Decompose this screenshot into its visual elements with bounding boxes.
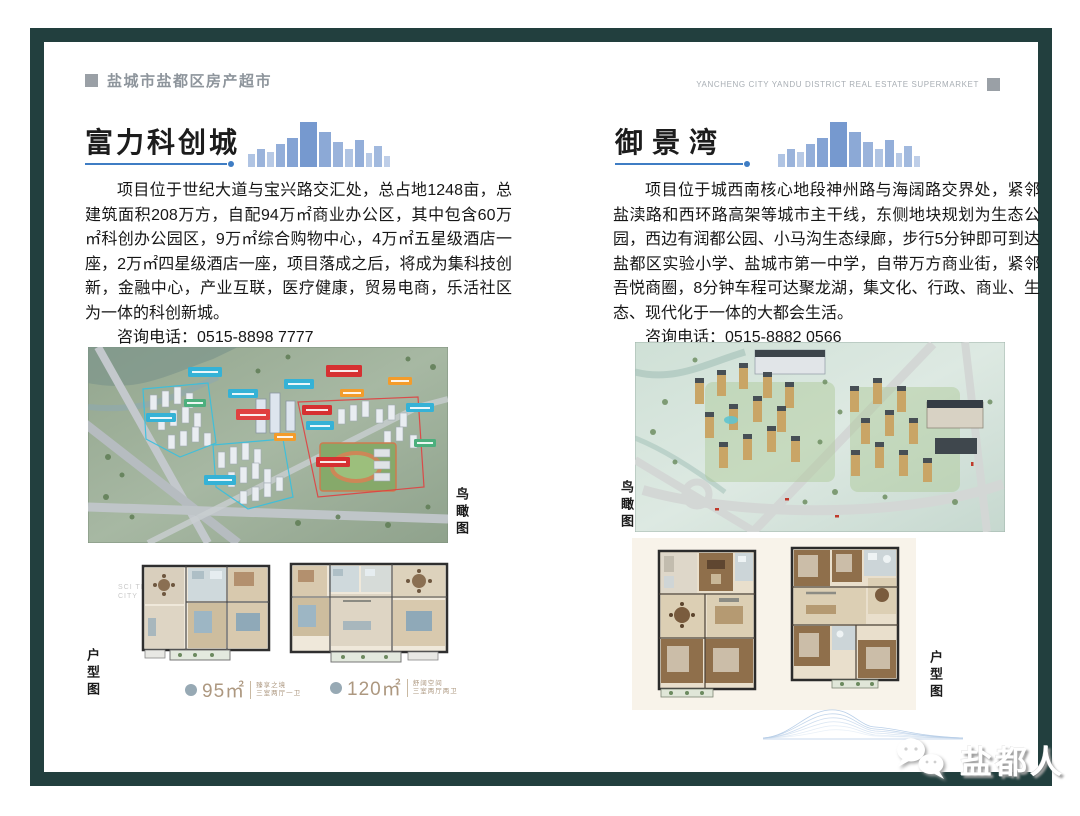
listing1-phone-number: 0515-8898 7777 (197, 329, 314, 346)
listing1-title-underline (85, 163, 227, 165)
tag-95-line1: 臻享之境 (256, 682, 301, 690)
header-title: 盐城市盐都区房产超市 (107, 70, 272, 91)
header-square-left (85, 74, 98, 87)
header-right: YANCHENG CITY YANDU DISTRICT REAL ESTATE… (696, 78, 1000, 91)
wechat-bubbles-icon (893, 736, 951, 784)
listing2-floorplan-label: 户型图 (926, 650, 945, 701)
tag-divider (250, 681, 251, 699)
listing2-description-block: 项目位于城西南核心地段神州路与海阔路交界处，紧邻盐渎路和西环路高架等城市主干线，… (613, 179, 1040, 351)
city-skyline-icon (778, 116, 928, 170)
listing1-floorplan-95 (140, 563, 272, 663)
tag-95-line2: 三室两厅一卫 (256, 690, 301, 698)
tag-circle-icon (185, 684, 197, 696)
header-title-en: YANCHENG CITY YANDU DISTRICT REAL ESTATE… (696, 80, 979, 89)
listing2-description: 项目位于城西南核心地段神州路与海阔路交界处，紧邻盐渎路和西环路高架等城市主干线，… (613, 179, 1040, 326)
listing2-title-underline (615, 163, 743, 165)
listing1-phone-label: 咨询电话： (117, 329, 197, 346)
listing2-title: 御景湾 (615, 121, 726, 161)
listing1-aerial-rendering (88, 347, 448, 543)
tag-circle-icon (330, 682, 342, 694)
tag-area-95: 95㎡ (202, 676, 245, 703)
listing1-description-block: 项目位于世纪大道与宝兴路交汇处，总占地1248亩，总建筑面积208万方，自配94… (85, 179, 512, 351)
listing2-aerial-label: 鸟瞰图 (617, 480, 636, 531)
listing1-description: 项目位于世纪大道与宝兴路交汇处，总占地1248亩，总建筑面积208万方，自配94… (85, 179, 512, 326)
listing2-floorplan-a (655, 548, 761, 700)
city-skyline-icon (248, 116, 398, 170)
floorplan-tag-120: 120㎡ 舒阔空间 三室两厅两卫 (330, 674, 458, 701)
tag-divider (407, 679, 408, 697)
brand-logo: 盐都人 (893, 736, 1065, 784)
tag-area-120: 120㎡ (347, 674, 402, 701)
brochure-page: 盐城市盐都区房产超市 YANCHENG CITY YANDU DISTRICT … (0, 0, 1080, 816)
listing1-floorplan-label: 户型图 (83, 648, 102, 699)
listing2-aerial-rendering (635, 342, 1005, 532)
header-square-right (987, 78, 1000, 91)
tag-120-line2: 三室两厅两卫 (413, 688, 458, 696)
brand-name: 盐都人 (960, 737, 1065, 783)
header-left: 盐城市盐都区房产超市 (85, 70, 272, 91)
listing1-aerial-label: 鸟瞰图 (452, 487, 471, 538)
listing1-title: 富力科创城 (85, 121, 240, 161)
listing2-floorplan-b (788, 545, 904, 691)
floorplan-tag-95: 95㎡ 臻享之境 三室两厅一卫 (185, 676, 301, 703)
tag-120-line1: 舒阔空间 (413, 680, 458, 688)
listing1-floorplan-120 (288, 561, 450, 665)
